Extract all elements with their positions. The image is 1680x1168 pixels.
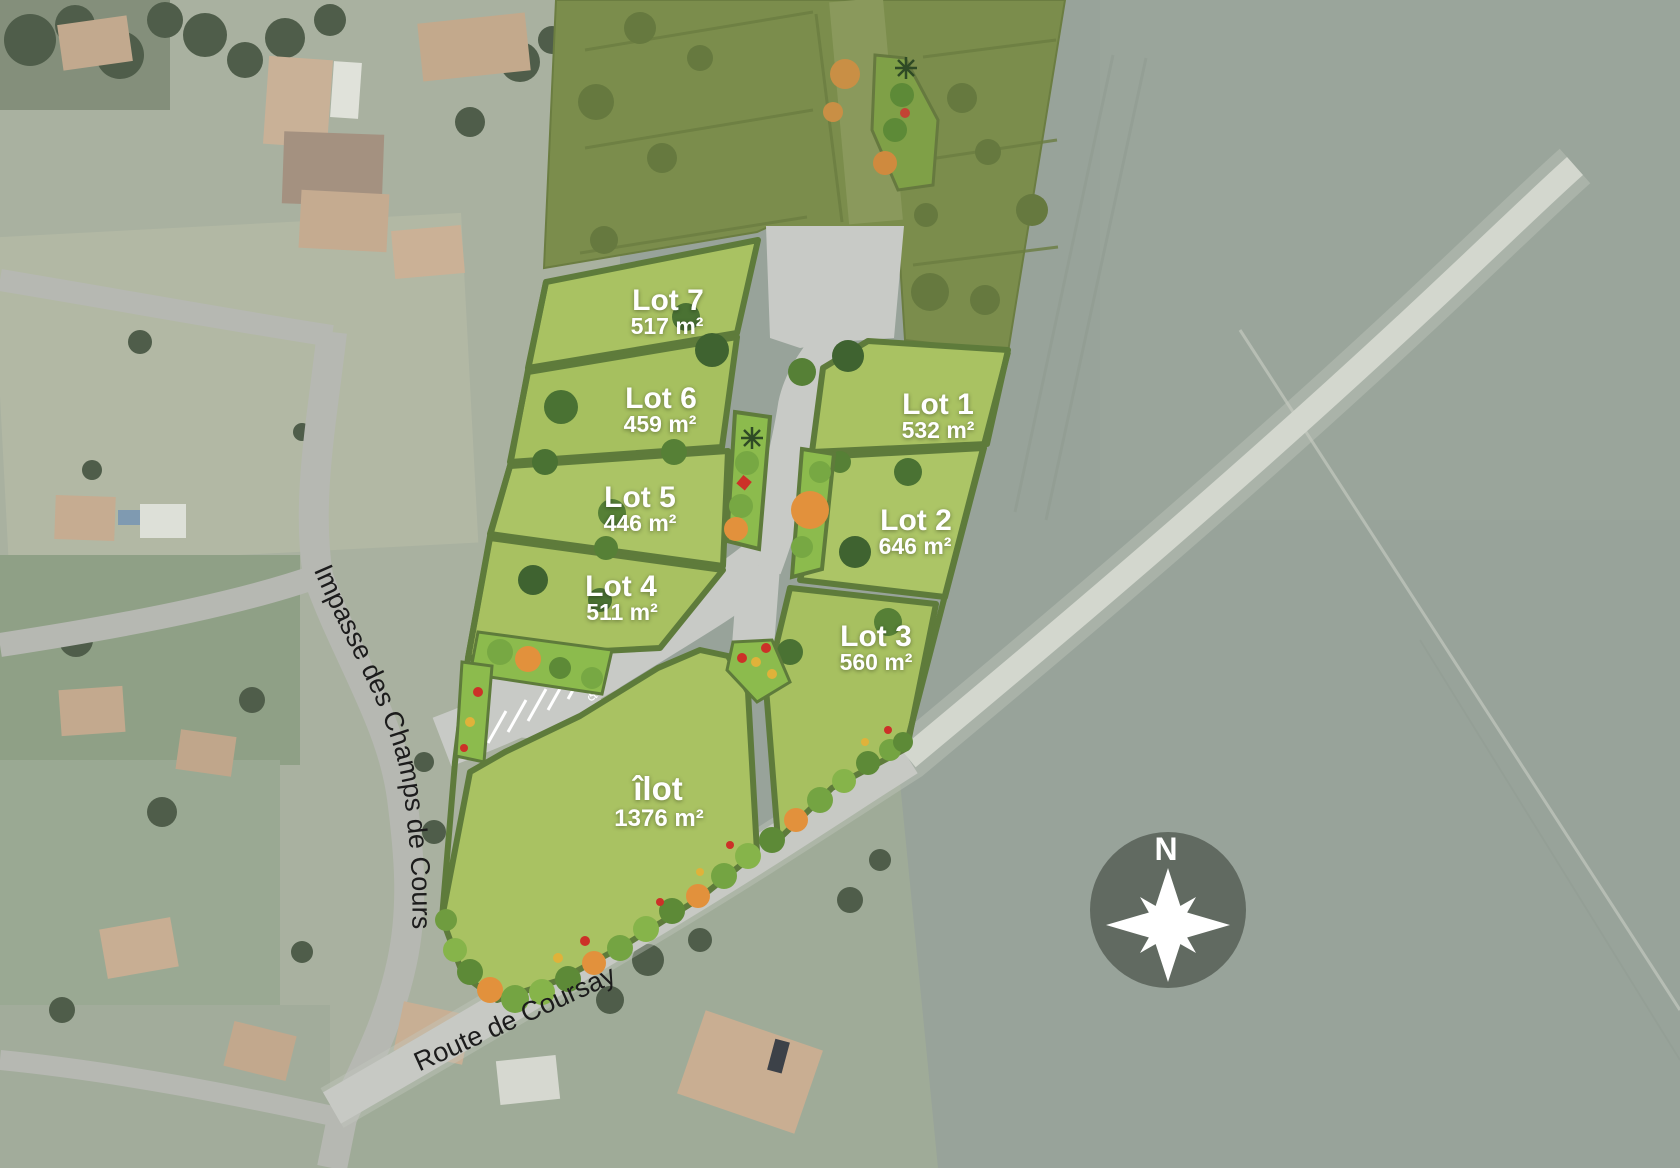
ilot-label: îlot [631,770,682,807]
lot-3-area: 560 m² [840,649,913,675]
lot-1-area: 532 m² [902,417,975,443]
compass-rose: N [1090,831,1246,988]
orange-tree [830,59,860,89]
star-plant-icon [741,427,763,449]
lot-4-area: 511 m² [586,599,658,625]
site-plan-map: ♿ [0,0,1680,1168]
lot-2-area: 646 m² [879,533,952,559]
orange-tree [823,102,843,122]
star-plant-icon [895,57,917,79]
lot-5-area: 446 m² [604,510,677,536]
lot-6-area: 459 m² [624,411,697,437]
lot-7-area: 517 m² [631,313,704,339]
compass-north-label: N [1154,831,1177,867]
map-canvas: ♿ [0,0,1680,1168]
ilot-area: 1376 m² [614,805,703,832]
